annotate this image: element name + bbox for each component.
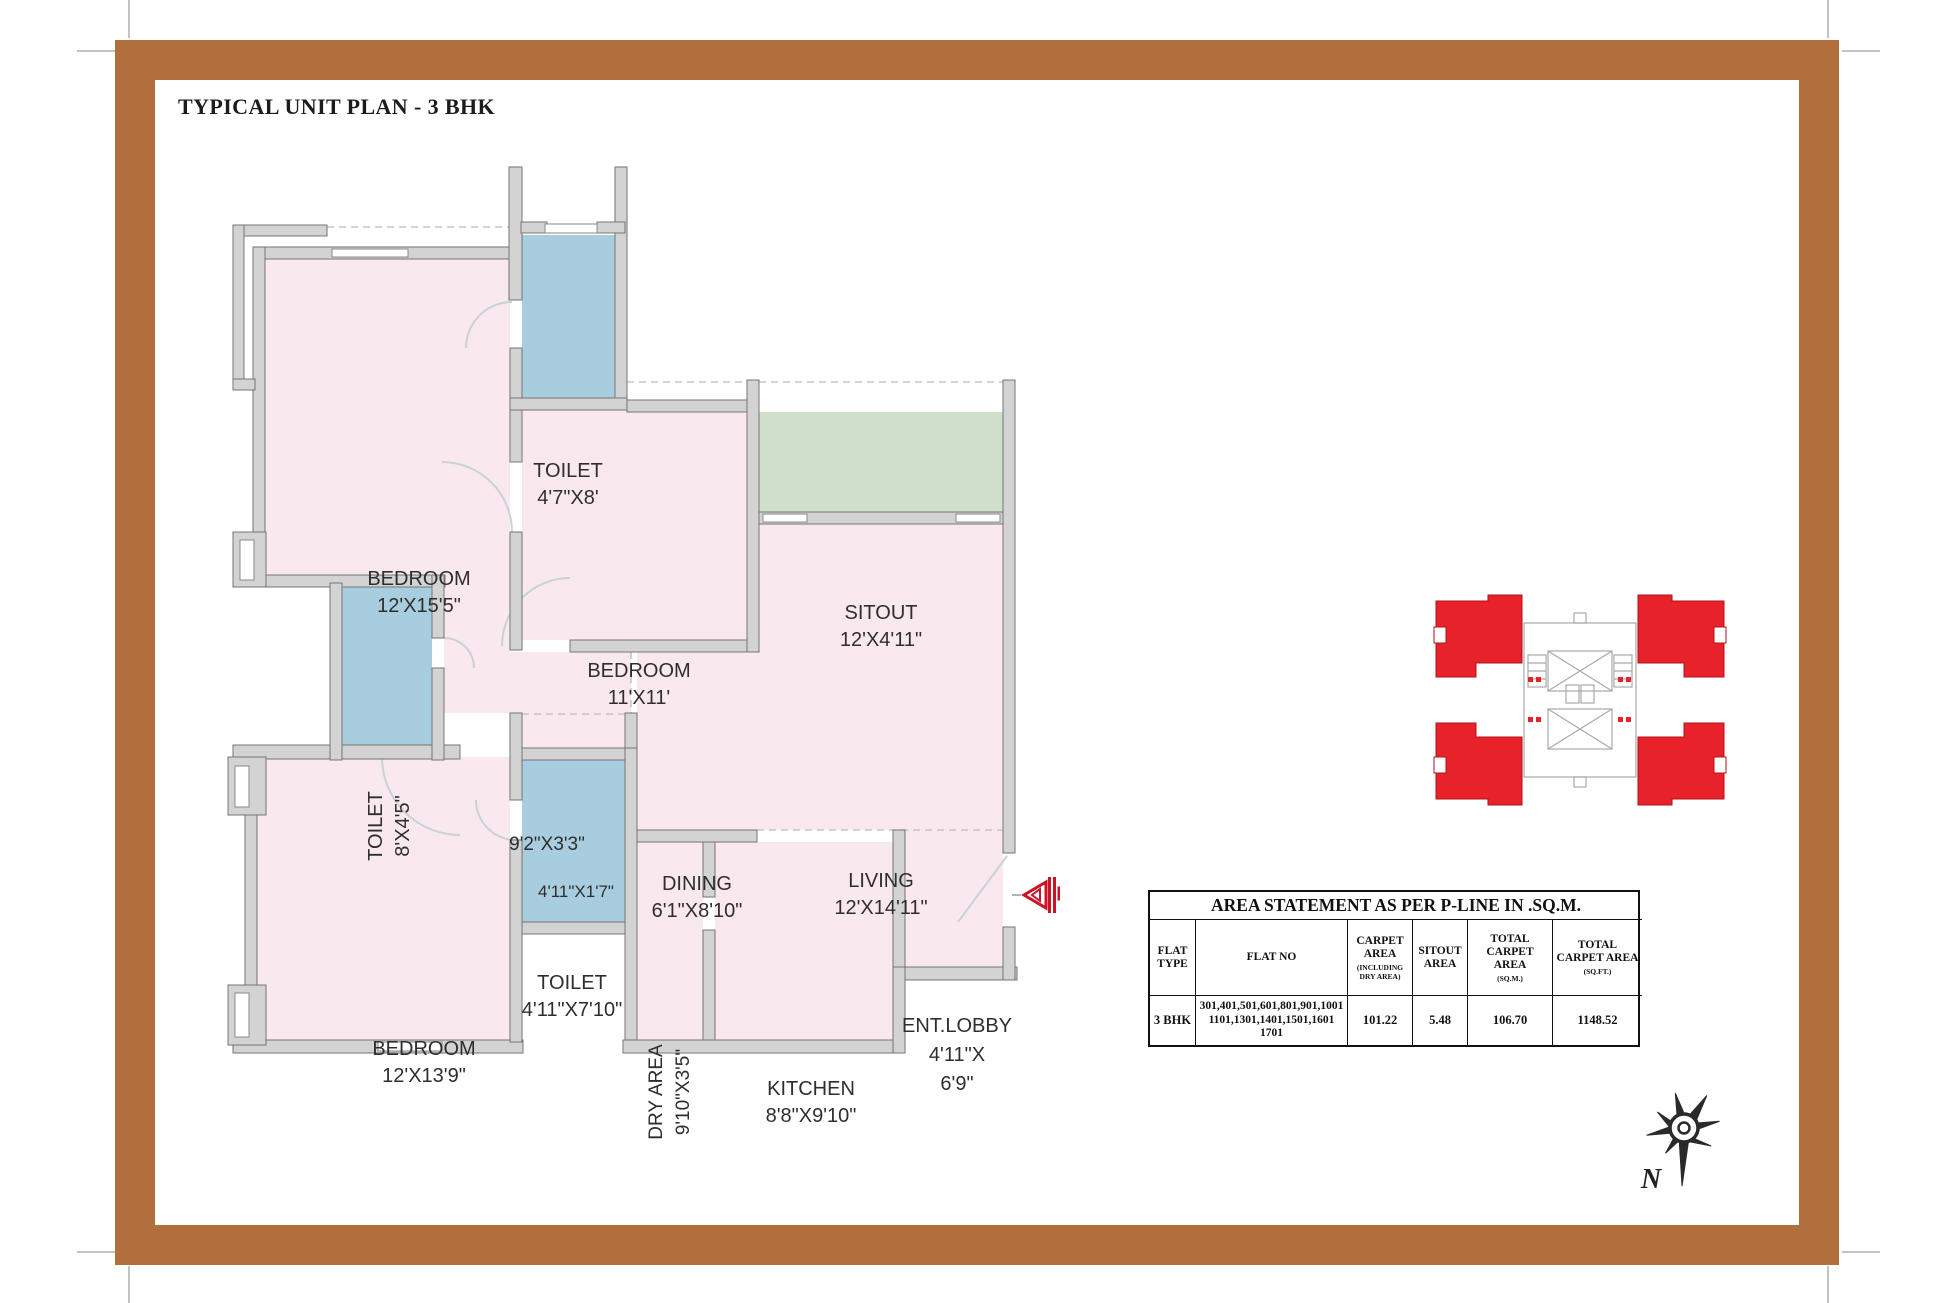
room-label-ent-lobby: ENT.LOBBY 4'11"X 6'9"	[902, 1012, 1012, 1099]
room-name: BEDROOM	[367, 566, 470, 593]
room-label-toilet-2: TOILET 8'X4'5"	[363, 791, 417, 861]
room-name: DINING	[652, 871, 743, 898]
room-name: TOILET	[363, 791, 390, 861]
crop-mark	[1827, 1266, 1829, 1303]
column-header-flat-type: FLAT TYPE	[1150, 919, 1195, 995]
room-label-toilet-3: TOILET 4'11"X7'10"	[522, 970, 622, 1024]
room-name: BEDROOM	[587, 658, 690, 685]
room-label-bedroom-3: BEDROOM 12'X13'9"	[372, 1036, 475, 1090]
cell-sitout-area: 5.48	[1412, 995, 1467, 1045]
room-dims: 12'X15'5"	[367, 593, 470, 620]
room-label-toilet-1: TOILET 4'7"X8'	[533, 458, 603, 512]
room-name: TOILET	[522, 970, 622, 997]
room-name: DRY AREA	[643, 1044, 670, 1139]
room-label-sitout: SITOUT 12'X4'11"	[840, 600, 922, 654]
room-dims: 12'X13'9"	[372, 1063, 475, 1090]
header-text: TOTAL CARPET AREA	[1555, 939, 1640, 965]
key-plan-core	[1524, 613, 1636, 787]
column-header-total-carpet-sqm: TOTAL CARPET AREA (SQ.M.)	[1467, 919, 1552, 995]
column-header-total-carpet-sqft: TOTAL CARPET AREA (SQ.FT.)	[1552, 919, 1642, 995]
cell-value: 106.70	[1493, 1013, 1527, 1028]
column-header-carpet-area: CARPET AREA (INCLUDING DRY AREA)	[1347, 919, 1412, 995]
room-name: SITOUT	[840, 600, 922, 627]
room-label-living: LIVING 12'X14'11"	[834, 868, 927, 922]
cell-value: 301,401,501,601,801,901,1001	[1200, 1000, 1344, 1014]
cell-total-carpet-sqm: 106.70	[1467, 995, 1552, 1045]
cell-value: 1101,1301,1401,1501,1601	[1209, 1014, 1335, 1028]
cell-flat-type: 3 BHK	[1150, 995, 1195, 1045]
key-plan	[1428, 593, 1732, 807]
entrance-door-icon	[1012, 877, 1060, 913]
header-note: (SQ.FT.)	[1584, 967, 1612, 976]
room-dims: 8'X4'5"	[390, 791, 417, 861]
crop-mark	[77, 50, 115, 52]
cell-value: 101.22	[1363, 1013, 1397, 1028]
header-note: (SQ.M.)	[1497, 974, 1523, 983]
header-note: (INCLUDING DRY AREA)	[1350, 963, 1410, 981]
column-header-sitout-area: SITOUT AREA	[1412, 919, 1467, 995]
cell-carpet-area: 101.22	[1347, 995, 1412, 1045]
room-name: LIVING	[834, 868, 927, 895]
room-label-bedroom-1: BEDROOM 12'X15'5"	[367, 566, 470, 620]
floor-plan-sheet: { "page_title": "TYPICAL UNIT PLAN - 3 B…	[0, 0, 1955, 1303]
area-statement-table: AREA STATEMENT AS PER P-LINE IN .SQ.M. F…	[1148, 890, 1640, 1047]
passage-dims-label: 9'2"X3'3"	[509, 831, 585, 858]
north-label: N	[1641, 1164, 1661, 1196]
room-dims: 8'8"X9'10"	[766, 1103, 857, 1130]
key-plan-highlighted-units	[1436, 595, 1724, 805]
cell-value: 5.48	[1429, 1013, 1451, 1028]
room-dims: 4'11"X	[902, 1041, 1012, 1070]
room-dims: 4'11"X7'10"	[522, 997, 622, 1024]
room-label-bedroom-2: BEDROOM 11'X11'	[587, 658, 690, 712]
cell-value: 1148.52	[1578, 1013, 1618, 1028]
crop-mark	[77, 1251, 115, 1253]
room-name: KITCHEN	[766, 1076, 857, 1103]
room-dims: 12'X14'11"	[834, 895, 927, 922]
room-label-dry-area: DRY AREA 9'10"X3'5"	[643, 1044, 697, 1139]
cell-value: 3 BHK	[1154, 1013, 1191, 1028]
column-header-flat-no: FLAT NO	[1195, 919, 1347, 995]
room-label-dining: DINING 6'1"X8'10"	[652, 871, 743, 925]
room-dims: 6'1"X8'10"	[652, 898, 743, 925]
crop-mark	[1842, 1251, 1880, 1253]
header-text: TOTAL CARPET AREA	[1470, 933, 1550, 972]
header-text: FLAT TYPE	[1152, 945, 1193, 971]
header-text: FLAT NO	[1247, 951, 1297, 964]
crop-mark	[128, 1266, 130, 1303]
room-label-kitchen: KITCHEN 8'8"X9'10"	[766, 1076, 857, 1130]
header-text: SITOUT AREA	[1415, 945, 1465, 971]
room-dims: 11'X11'	[587, 685, 690, 712]
room-dims: 9'2"X3'3"	[509, 831, 585, 858]
room-name: ENT.LOBBY	[902, 1012, 1012, 1041]
room-dims: 4'11"X1'7"	[538, 881, 614, 903]
cell-value: 1701	[1260, 1027, 1283, 1041]
cell-flat-no: 301,401,501,601,801,901,1001 1101,1301,1…	[1195, 995, 1347, 1045]
room-dims: 12'X4'11"	[840, 627, 922, 654]
room-dims: 4'7"X8'	[533, 485, 603, 512]
crop-mark	[1842, 50, 1880, 52]
cell-total-carpet-sqft: 1148.52	[1552, 995, 1642, 1045]
room-dims: 9'10"X3'5"	[670, 1044, 697, 1139]
page-title: TYPICAL UNIT PLAN - 3 BHK	[178, 94, 495, 120]
room-dims: 6'9"	[902, 1070, 1012, 1099]
floor-plan-drawing	[225, 160, 1060, 1060]
table-title: AREA STATEMENT AS PER P-LINE IN .SQ.M.	[1150, 892, 1642, 919]
crop-mark	[1827, 0, 1829, 38]
crop-mark	[128, 0, 130, 38]
room-name: BEDROOM	[372, 1036, 475, 1063]
header-text: CARPET AREA	[1350, 935, 1410, 961]
room-name: TOILET	[533, 458, 603, 485]
small-lobby-dims-label: 4'11"X1'7"	[538, 881, 614, 903]
